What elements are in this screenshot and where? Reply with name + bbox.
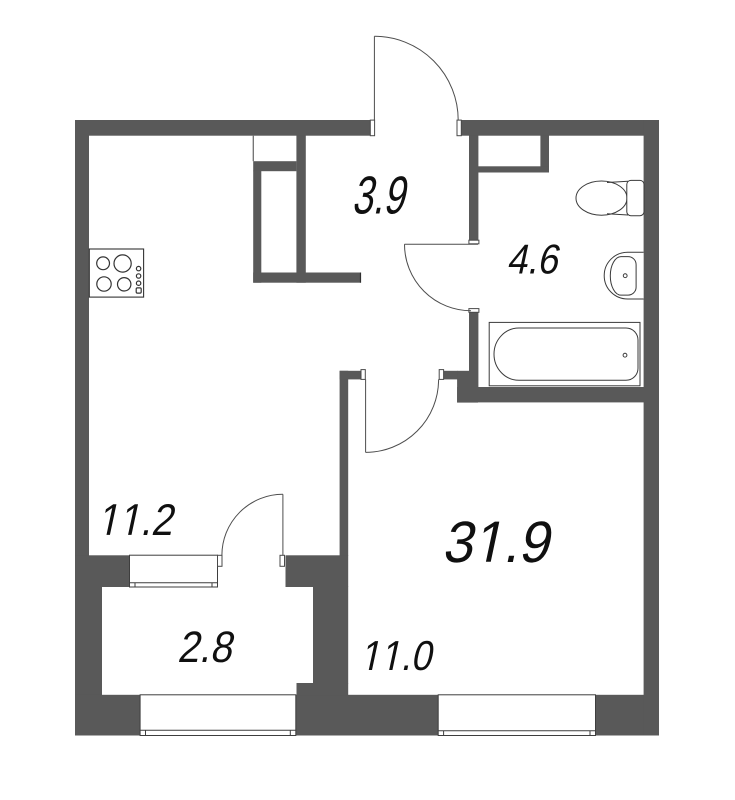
- svg-text:4.6: 4.6: [504, 237, 565, 283]
- svg-text:2.8: 2.8: [175, 622, 240, 671]
